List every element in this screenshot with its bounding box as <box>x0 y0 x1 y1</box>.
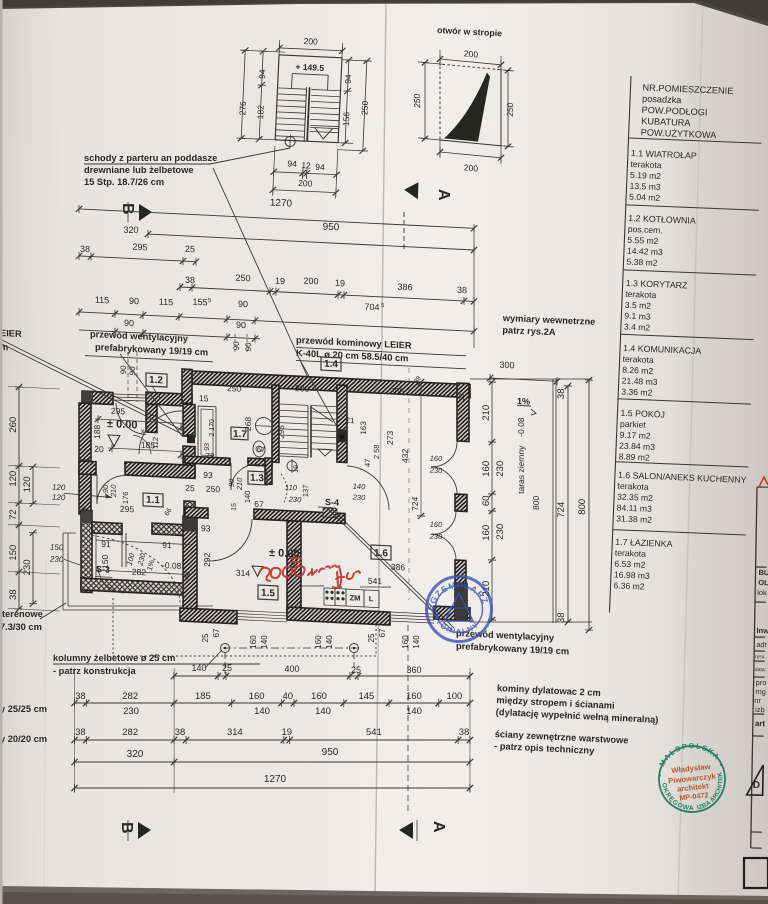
svg-text:25: 25 <box>201 633 210 642</box>
svg-text:150: 150 <box>50 543 64 553</box>
svg-text:950: 950 <box>323 222 340 234</box>
svg-text:295: 295 <box>277 424 286 438</box>
svg-text:38: 38 <box>185 275 195 285</box>
svg-text:90: 90 <box>124 318 134 328</box>
svg-text:9.1 m3: 9.1 m3 <box>624 311 651 322</box>
svg-text:156: 156 <box>341 111 352 126</box>
svg-text:282: 282 <box>122 691 138 702</box>
svg-text:724: 724 <box>410 496 420 511</box>
svg-text:150: 150 <box>8 545 19 561</box>
svg-text:schody z parteru an poddasze: schody z parteru an poddasze <box>84 153 217 163</box>
svg-text:90: 90 <box>238 299 248 309</box>
svg-text:67: 67 <box>212 628 221 637</box>
svg-text:38: 38 <box>459 393 466 401</box>
svg-text:300: 300 <box>499 360 514 371</box>
svg-text:terakota: terakota <box>617 481 649 492</box>
svg-text:188: 188 <box>92 424 102 439</box>
svg-text:230: 230 <box>429 532 443 542</box>
svg-text:94: 94 <box>315 162 325 172</box>
svg-text:1%: 1% <box>145 558 157 571</box>
svg-text:360: 360 <box>406 665 421 675</box>
svg-text:314: 314 <box>227 727 243 738</box>
svg-text:140: 140 <box>406 706 422 717</box>
svg-text:84.11 m3: 84.11 m3 <box>616 502 652 513</box>
svg-text:250: 250 <box>206 484 220 495</box>
svg-text:art: art <box>755 719 766 728</box>
svg-text:prefabrykowany 19/19 cm: prefabrykowany 19/19 cm <box>95 342 208 358</box>
svg-text:EIER: EIER <box>0 328 22 339</box>
svg-text:1.1: 1.1 <box>146 495 160 507</box>
svg-text:67: 67 <box>254 499 264 509</box>
svg-text:3.4 m2: 3.4 m2 <box>624 322 651 333</box>
svg-text:100: 100 <box>446 691 462 702</box>
svg-text:90: 90 <box>119 365 128 375</box>
svg-text:268: 268 <box>243 416 253 431</box>
svg-text:800: 800 <box>531 495 541 510</box>
svg-text:230: 230 <box>22 559 33 575</box>
svg-text:25: 25 <box>351 665 361 675</box>
svg-text:230: 230 <box>288 495 302 505</box>
svg-text:rysu: rysu <box>755 654 765 660</box>
svg-text:38: 38 <box>75 727 86 738</box>
svg-text:200: 200 <box>464 48 478 59</box>
svg-text:230: 230 <box>123 706 139 717</box>
svg-text:9.17 m2: 9.17 m2 <box>619 430 651 441</box>
svg-text:1270: 1270 <box>270 198 293 210</box>
svg-text:25: 25 <box>185 244 195 254</box>
svg-text:izb: izb <box>755 705 765 714</box>
svg-text:210: 210 <box>109 484 118 499</box>
svg-text:163: 163 <box>359 420 368 434</box>
svg-text:5.55 m2: 5.55 m2 <box>627 235 659 246</box>
svg-text:16.98 m3: 16.98 m3 <box>614 569 650 580</box>
svg-text:90: 90 <box>129 296 139 306</box>
svg-text:38: 38 <box>556 388 567 399</box>
svg-text:S-4: S-4 <box>325 497 339 508</box>
svg-text:parkiet: parkiet <box>620 419 647 430</box>
svg-text:38: 38 <box>457 285 467 295</box>
svg-text:5.19 m2: 5.19 m2 <box>630 170 662 181</box>
svg-text:POW.UŻYTKOWA: POW.UŻYTKOWA <box>641 127 718 140</box>
svg-text:nr: nr <box>754 696 761 705</box>
svg-text:160: 160 <box>430 520 443 530</box>
svg-text:otwór w stropie: otwór w stropie <box>437 25 503 38</box>
svg-text:5.04 m2: 5.04 m2 <box>629 192 661 203</box>
svg-text:250: 250 <box>412 93 422 108</box>
svg-text:140: 140 <box>412 635 421 649</box>
svg-text:140: 140 <box>243 490 252 503</box>
svg-text:6.36 m2: 6.36 m2 <box>613 580 645 591</box>
svg-text:93: 93 <box>201 523 211 533</box>
svg-text:160: 160 <box>314 635 323 649</box>
svg-text:1.2: 1.2 <box>149 375 163 387</box>
svg-text:724: 724 <box>556 502 567 518</box>
svg-text:400: 400 <box>284 664 299 674</box>
svg-text:L: L <box>369 594 374 603</box>
svg-text:lok: lok <box>757 588 767 597</box>
svg-text:38: 38 <box>75 691 86 702</box>
svg-text:40: 40 <box>282 691 293 702</box>
svg-text:292: 292 <box>202 552 212 567</box>
svg-text:2 170: 2 170 <box>209 419 216 437</box>
svg-text:250: 250 <box>359 100 370 115</box>
svg-text:data:: data: <box>755 667 766 673</box>
svg-text:7.3/30 cm: 7.3/30 cm <box>0 622 42 632</box>
svg-text:90: 90 <box>236 320 246 330</box>
svg-text:140: 140 <box>325 635 334 649</box>
svg-text:386: 386 <box>391 562 405 573</box>
svg-text:250: 250 <box>227 383 241 394</box>
svg-text:1270: 1270 <box>264 774 287 785</box>
svg-text:ZM: ZM <box>350 593 361 603</box>
svg-text:120: 120 <box>52 493 66 503</box>
svg-text:terakota: terakota <box>625 289 657 300</box>
svg-text:66: 66 <box>164 507 174 517</box>
svg-text:94: 94 <box>287 158 297 168</box>
svg-text:- patrz konstrukcja: - patrz konstrukcja <box>53 666 136 676</box>
svg-text:terakota: terakota <box>630 159 662 170</box>
svg-text:8.89 m2: 8.89 m2 <box>619 451 651 462</box>
svg-text:200: 200 <box>303 276 318 287</box>
svg-text:67: 67 <box>378 628 387 637</box>
svg-text:140: 140 <box>191 663 206 673</box>
svg-text:541: 541 <box>368 576 382 587</box>
svg-text:patrz rys.2A: patrz rys.2A <box>502 325 556 337</box>
svg-text:1.5 POKÓJ: 1.5 POKÓJ <box>620 408 665 420</box>
svg-text:5: 5 <box>381 303 385 309</box>
svg-text:432: 432 <box>400 448 410 463</box>
svg-text:1.3: 1.3 <box>250 473 264 485</box>
svg-text:200: 200 <box>464 162 478 173</box>
svg-text:90: 90 <box>244 342 253 352</box>
svg-text:- patrz opis techniczny: - patrz opis techniczny <box>494 741 595 756</box>
svg-text:250: 250 <box>505 102 515 117</box>
svg-text:120: 120 <box>22 476 33 492</box>
svg-text:25: 25 <box>367 633 376 642</box>
svg-text:S-3: S-3 <box>96 564 110 575</box>
svg-text:210: 210 <box>235 477 244 492</box>
svg-text:mg: mg <box>755 687 766 696</box>
svg-text:1.6: 1.6 <box>374 548 388 560</box>
svg-text:BU: BU <box>758 568 768 577</box>
svg-text:295: 295 <box>120 504 134 515</box>
svg-text:160: 160 <box>249 691 265 702</box>
svg-text:704: 704 <box>364 302 379 313</box>
svg-text:32.35 m2: 32.35 m2 <box>617 492 653 503</box>
svg-text:38: 38 <box>80 244 90 254</box>
svg-text:OL: OL <box>758 578 768 587</box>
svg-text:31.38 m2: 31.38 m2 <box>616 513 652 524</box>
svg-text:160: 160 <box>430 454 443 464</box>
svg-text:145: 145 <box>358 691 374 702</box>
svg-text:160: 160 <box>481 525 492 541</box>
svg-text:21.48 m3: 21.48 m3 <box>622 376 658 387</box>
svg-text:112: 112 <box>151 437 160 449</box>
svg-text:+ 149.5: + 149.5 <box>295 62 324 73</box>
svg-text:200: 200 <box>295 383 309 394</box>
svg-text:B: B <box>119 203 136 215</box>
svg-text:MP-0472: MP-0472 <box>679 790 709 802</box>
svg-text:155: 155 <box>192 297 207 308</box>
svg-text:91: 91 <box>162 540 172 550</box>
svg-text:67: 67 <box>257 445 265 454</box>
svg-text:taras ziemny: taras ziemny <box>516 445 526 494</box>
svg-text:115: 115 <box>95 295 109 306</box>
svg-text:adr: adr <box>756 640 767 649</box>
svg-text:185: 185 <box>195 691 211 702</box>
svg-text:A: A <box>435 189 452 201</box>
svg-text:5: 5 <box>208 298 212 304</box>
svg-text:320: 320 <box>127 749 144 760</box>
svg-text:200: 200 <box>298 178 313 189</box>
svg-text:25: 25 <box>185 483 195 493</box>
svg-text:8.26 m2: 8.26 m2 <box>622 365 654 376</box>
svg-text:pro: pro <box>756 678 767 687</box>
svg-text:prefabrykowany 19/19 cm: prefabrykowany 19/19 cm <box>456 641 569 657</box>
svg-text:B: B <box>118 822 135 834</box>
svg-text:140: 140 <box>353 482 366 492</box>
svg-text:Inw: Inw <box>756 626 768 635</box>
svg-text:15: 15 <box>199 393 209 403</box>
svg-text:terenowe: terenowe <box>2 609 43 619</box>
svg-text:94: 94 <box>343 74 353 84</box>
svg-text:KUBATURA: KUBATURA <box>641 116 692 128</box>
svg-text:386: 386 <box>390 386 404 397</box>
svg-text:120: 120 <box>52 483 66 493</box>
svg-text:13.5 m3: 13.5 m3 <box>629 181 661 192</box>
svg-text:15: 15 <box>231 503 238 511</box>
svg-text:15 Stp. 18.7/26 cm: 15 Stp. 18.7/26 cm <box>84 177 164 187</box>
svg-text:200: 200 <box>303 36 318 47</box>
svg-text:y 25/25 cm: y 25/25 cm <box>0 704 47 714</box>
svg-text:276: 276 <box>237 101 248 116</box>
svg-text:90: 90 <box>232 341 241 351</box>
svg-text:-0.08: -0.08 <box>516 417 526 437</box>
svg-text:5.38 m2: 5.38 m2 <box>626 257 658 268</box>
svg-text:160: 160 <box>311 691 327 702</box>
svg-text:260: 260 <box>8 417 19 433</box>
svg-text:120: 120 <box>8 471 19 487</box>
svg-text:47: 47 <box>363 458 372 467</box>
svg-text:950: 950 <box>322 747 339 758</box>
svg-text:282: 282 <box>122 727 138 738</box>
svg-text:320: 320 <box>123 225 138 235</box>
svg-text:14.42 m3: 14.42 m3 <box>627 246 663 257</box>
svg-text:1.4: 1.4 <box>324 359 338 371</box>
svg-text:230: 230 <box>429 466 443 476</box>
svg-text:D: D <box>753 780 760 791</box>
svg-text:pos.cem.: pos.cem. <box>628 224 663 235</box>
svg-text:2 58: 2 58 <box>372 444 381 459</box>
svg-text:273: 273 <box>385 430 395 445</box>
svg-text:160: 160 <box>401 635 410 649</box>
svg-text:93: 93 <box>203 470 213 480</box>
svg-text:21: 21 <box>346 416 355 425</box>
svg-text:800: 800 <box>577 499 588 515</box>
svg-text:25: 25 <box>222 663 232 673</box>
svg-text:6.53 m2: 6.53 m2 <box>614 559 646 570</box>
svg-text:140: 140 <box>315 706 331 717</box>
svg-text:19: 19 <box>335 278 345 288</box>
svg-text:terakota: terakota <box>615 548 647 559</box>
svg-text:A: A <box>430 821 447 833</box>
svg-text:20: 20 <box>94 444 104 454</box>
svg-text:38: 38 <box>8 589 19 600</box>
svg-text:115: 115 <box>159 297 173 308</box>
svg-text:182: 182 <box>255 105 266 120</box>
svg-text:94: 94 <box>257 69 267 79</box>
svg-text:137: 137 <box>301 484 310 497</box>
svg-text:posadzka: posadzka <box>642 94 683 106</box>
svg-text:19: 19 <box>293 465 300 473</box>
svg-text:terakota: terakota <box>622 354 654 365</box>
svg-text:kolumny żelbetowe ø 25 cm: kolumny żelbetowe ø 25 cm <box>53 653 175 663</box>
svg-text:314: 314 <box>236 568 250 579</box>
svg-text:1.5: 1.5 <box>261 588 275 600</box>
svg-text:38: 38 <box>459 727 470 738</box>
svg-text:250: 250 <box>235 273 250 284</box>
svg-text:140: 140 <box>254 706 270 717</box>
svg-text:230: 230 <box>352 493 366 503</box>
svg-text:230: 230 <box>495 524 506 540</box>
svg-text:140: 140 <box>260 635 269 649</box>
svg-text:(dylatację wypełnić wełną mine: (dylatację wypełnić wełną mineralną) <box>496 707 659 725</box>
svg-text:3.36 m2: 3.36 m2 <box>621 386 653 397</box>
svg-text:60: 60 <box>481 495 492 506</box>
svg-text:-0.08: -0.08 <box>162 560 182 571</box>
svg-text:38: 38 <box>175 727 186 738</box>
svg-text:210: 210 <box>481 405 492 421</box>
svg-text:drewniane lub żelbetowe: drewniane lub żelbetowe <box>84 165 194 175</box>
svg-text:295: 295 <box>132 242 147 253</box>
svg-text:y 20/20 cm: y 20/20 cm <box>0 734 47 744</box>
svg-text:541: 541 <box>366 727 382 738</box>
svg-text:19: 19 <box>275 276 285 286</box>
svg-text:230: 230 <box>495 461 506 477</box>
svg-text:386: 386 <box>397 282 412 293</box>
svg-text:230: 230 <box>49 554 64 564</box>
svg-text:19: 19 <box>281 727 292 738</box>
svg-text:72: 72 <box>8 509 19 520</box>
svg-text:160: 160 <box>249 635 258 649</box>
svg-text:160: 160 <box>481 461 492 477</box>
svg-text:3.5 m2: 3.5 m2 <box>625 300 652 311</box>
svg-text:176: 176 <box>121 491 130 504</box>
svg-text:23.84 m3: 23.84 m3 <box>619 441 655 452</box>
